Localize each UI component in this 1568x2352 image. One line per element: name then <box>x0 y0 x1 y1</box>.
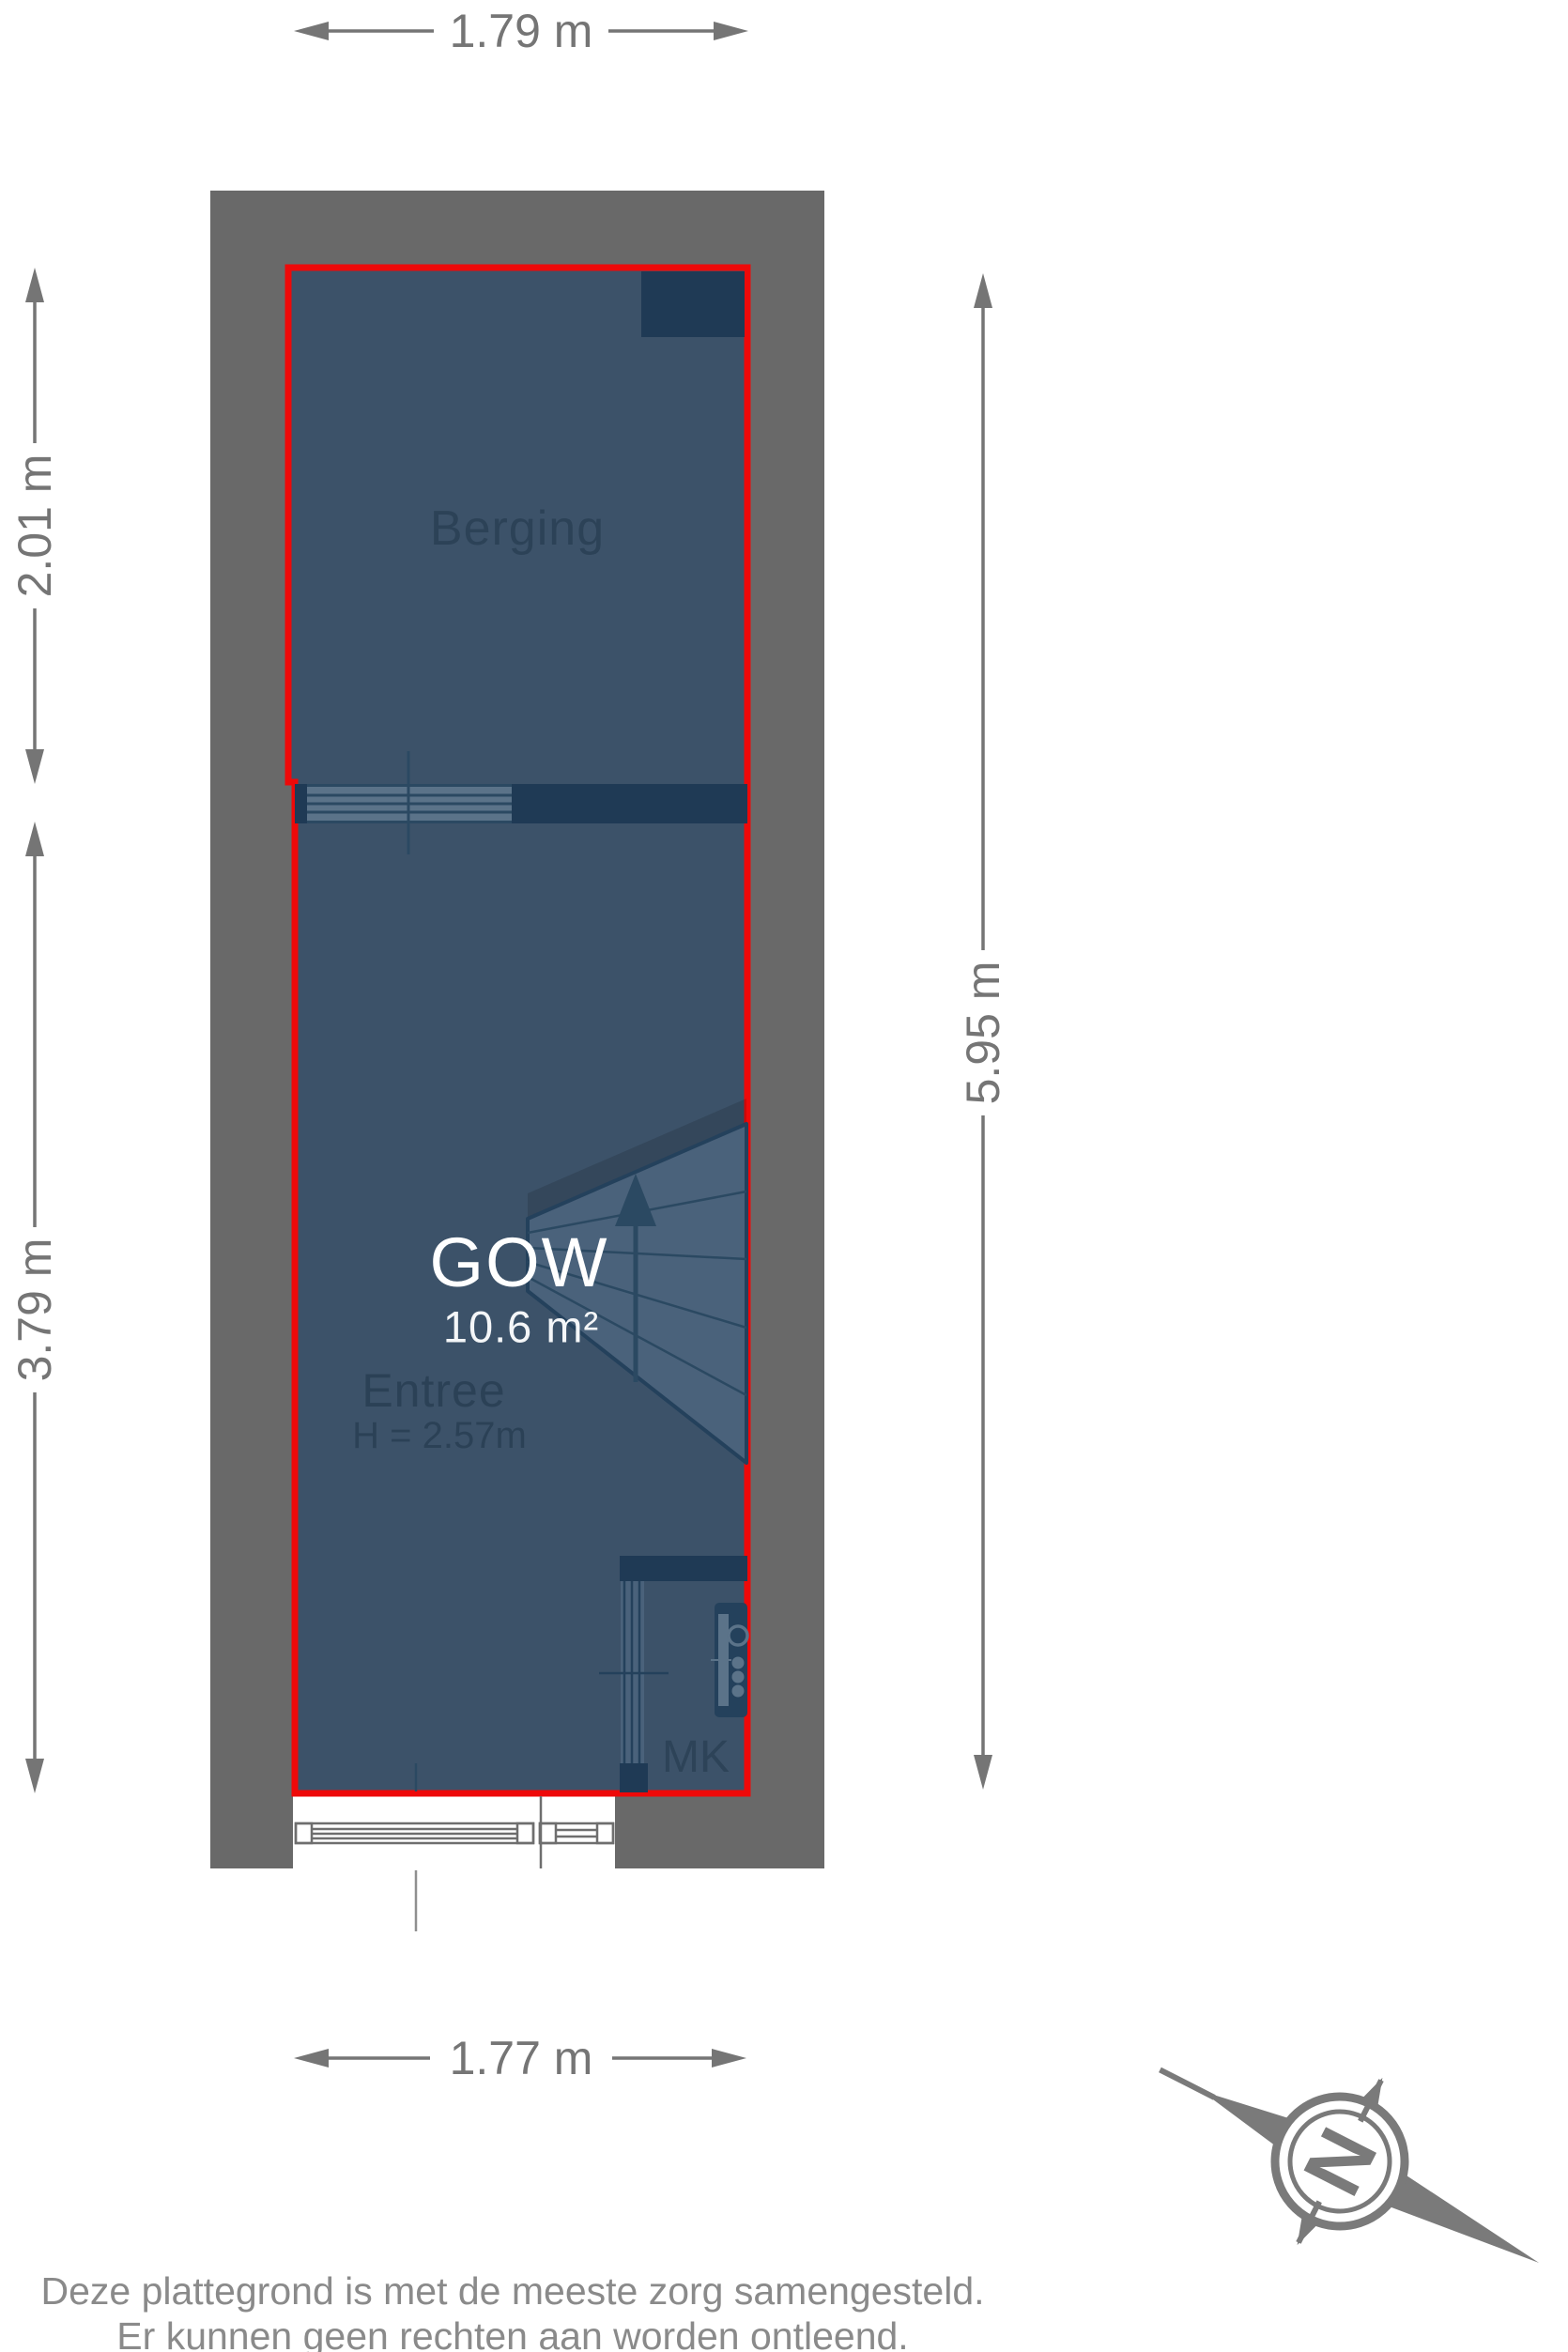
room-label-entree: Entree <box>361 1367 505 1414</box>
floor-plan-svg: N <box>0 0 1568 2352</box>
compass-icon: N <box>1117 1986 1568 2346</box>
dimension-top-label: 1.79 m <box>450 8 593 54</box>
dimension-left-upper-label: 2.01 m <box>11 454 58 598</box>
room-label-berging: Berging <box>430 504 605 553</box>
meter-unit-icon <box>711 1603 747 1717</box>
disclaimer-line-1: Deze plattegrond is met de meeste zorg s… <box>40 2272 984 2311</box>
dimension-right-label: 5.95 m <box>960 961 1007 1105</box>
room-label-mk: MK <box>662 1735 730 1780</box>
mk-wall <box>620 1556 747 1581</box>
floorplan-page: N 1.79 m 2.01 m 3.79 m 5.95 m 1.77 m Ber… <box>0 0 1568 2352</box>
dimension-bottom-label: 1.77 m <box>450 2035 593 2082</box>
ceiling-height-label: H = 2.57m <box>352 1417 527 1454</box>
shaft-rect <box>641 271 745 337</box>
area-value-gow: 10.6 m² <box>443 1305 599 1349</box>
dimension-left-lower-label: 3.79 m <box>11 1238 58 1382</box>
disclaimer-line-2: Er kunnen geen rechten aan worden ontlee… <box>116 2317 908 2352</box>
area-label-gow: GOW <box>430 1228 609 1298</box>
